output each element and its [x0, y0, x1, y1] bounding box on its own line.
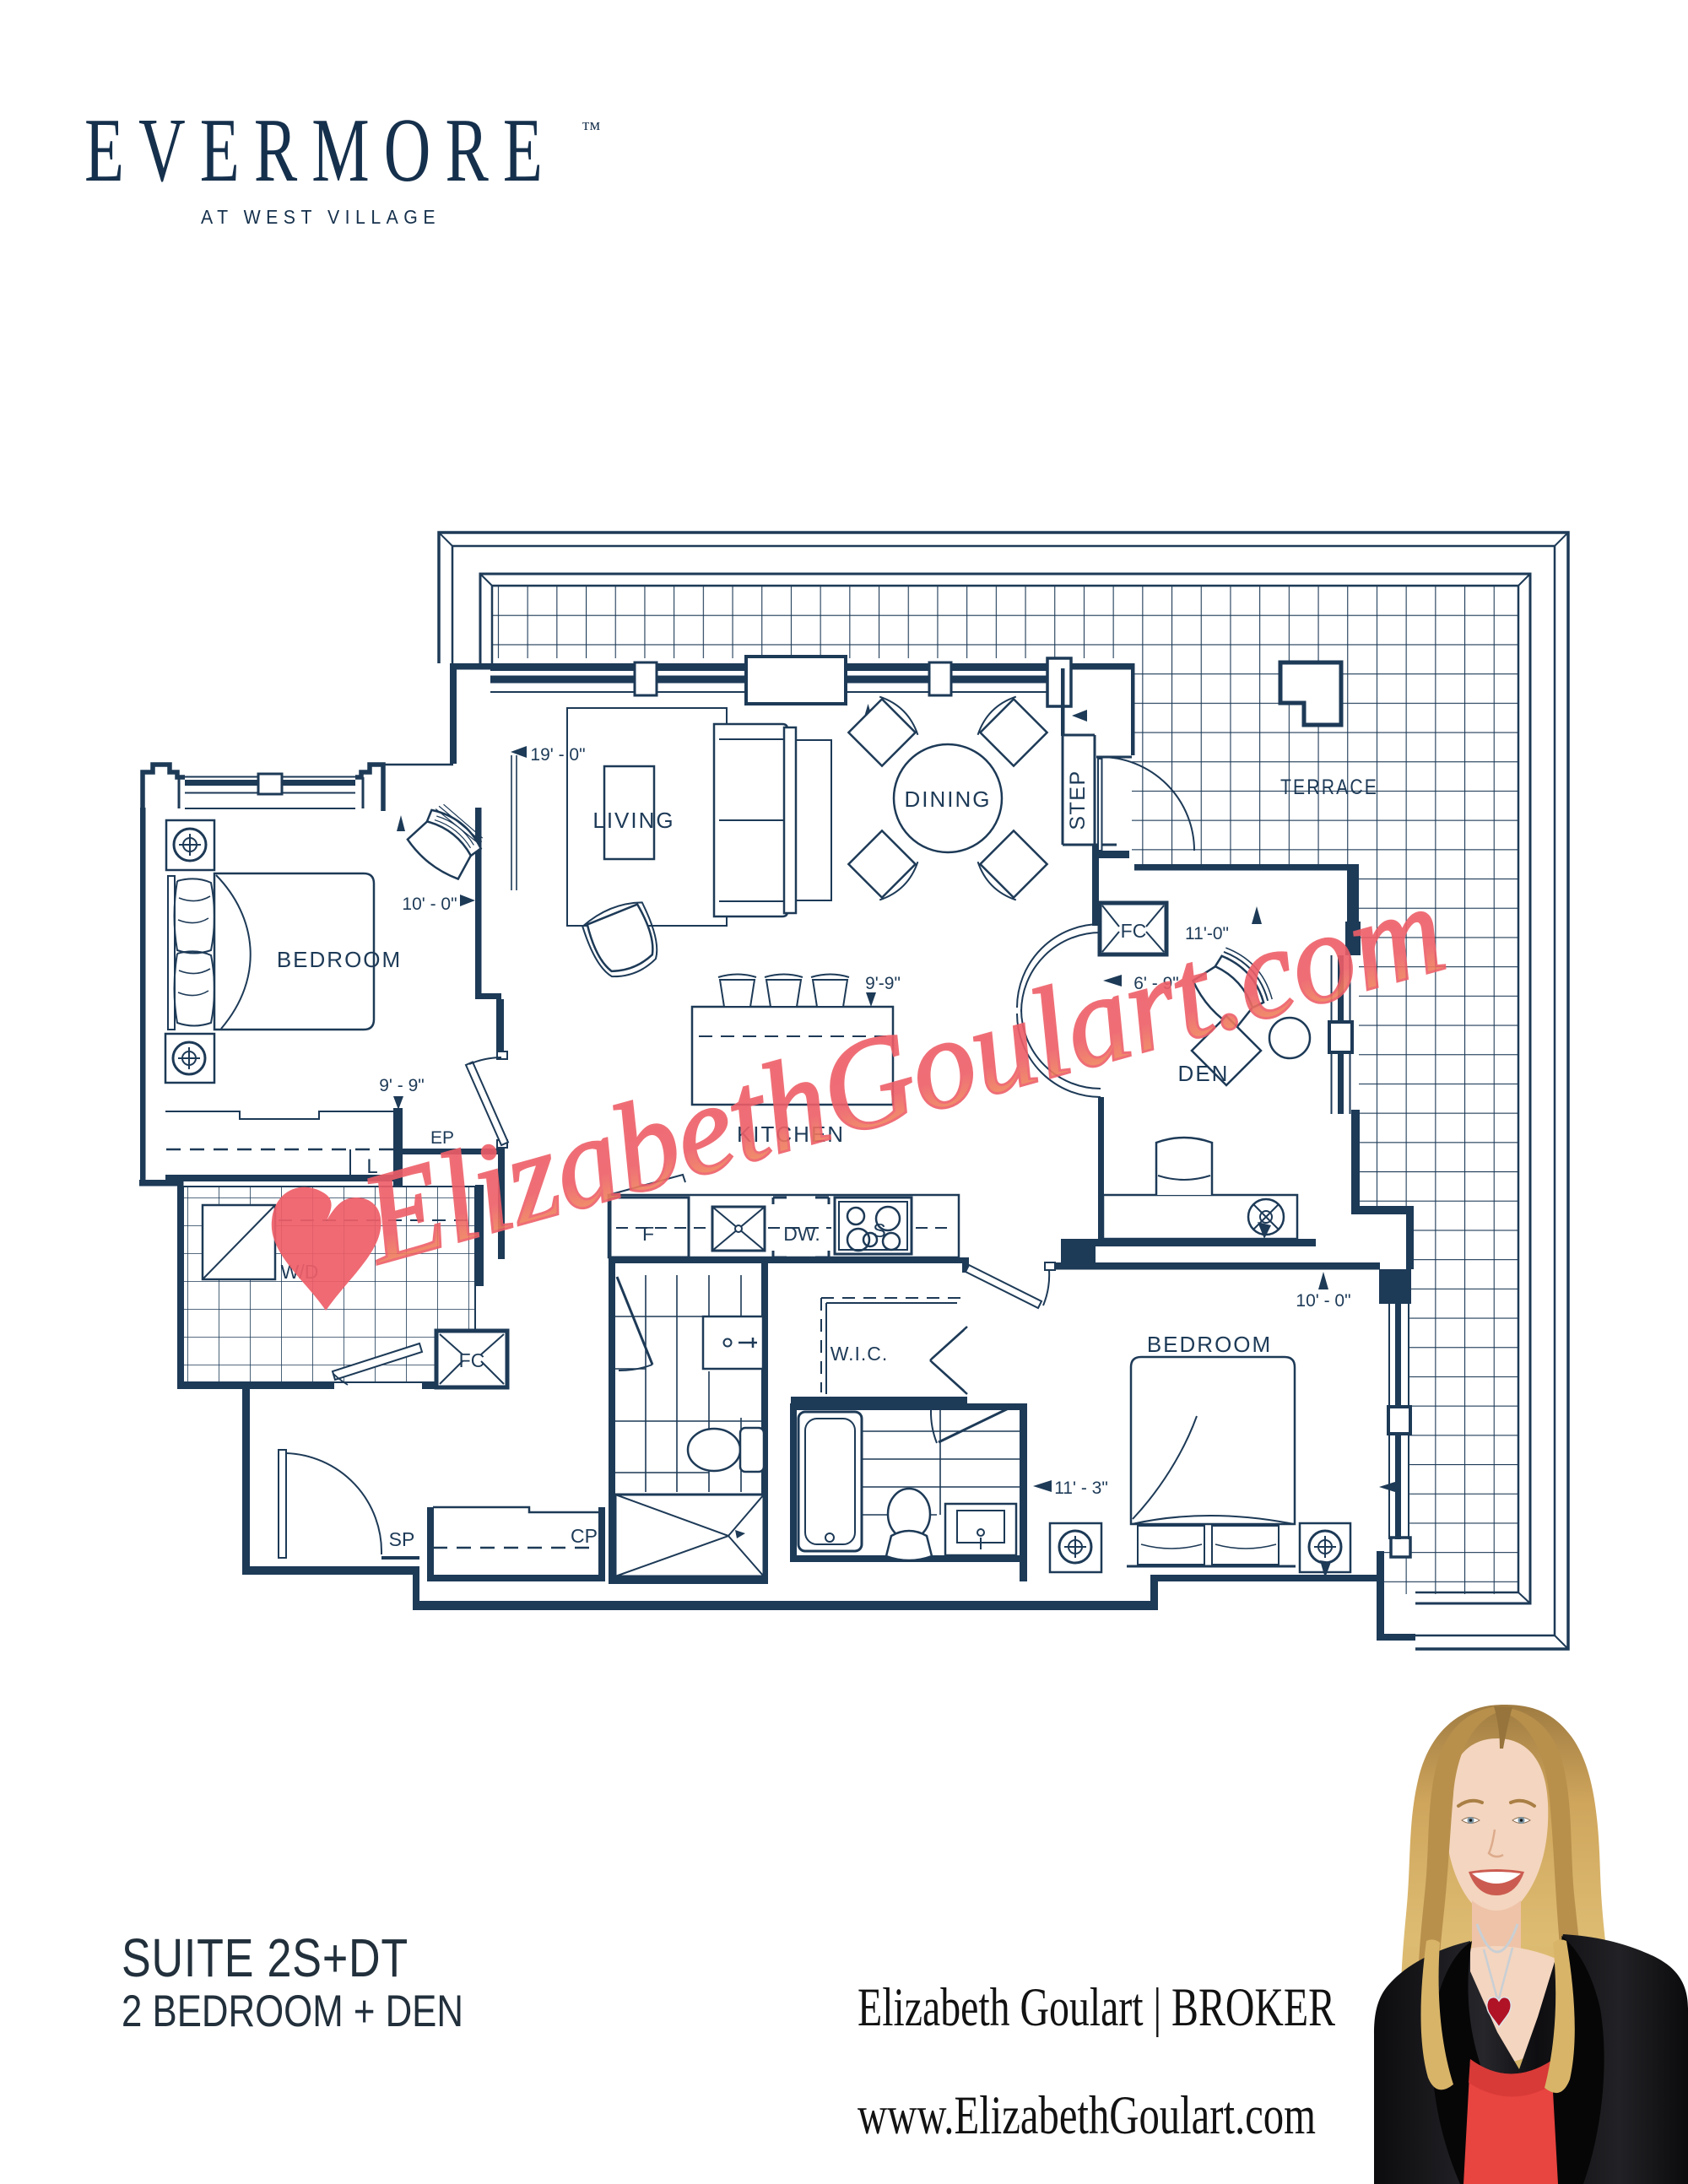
- svg-text:www.ElizabethGoulart.com: www.ElizabethGoulart.com: [858, 2085, 1316, 2146]
- svg-text:DW.: DW.: [783, 1223, 820, 1245]
- svg-text:S: S: [873, 1219, 885, 1241]
- svg-text:EVERMORE: EVERMORE: [84, 100, 557, 201]
- svg-text:™: ™: [582, 118, 601, 139]
- svg-text:CP: CP: [571, 1525, 598, 1547]
- svg-text:AT WEST VILLAGE: AT WEST VILLAGE: [201, 206, 441, 228]
- svg-text:Elizabeth Goulart | BROKER: Elizabeth Goulart | BROKER: [858, 1977, 1335, 2038]
- svg-text:TERRACE: TERRACE: [1280, 776, 1378, 799]
- svg-text:DINING: DINING: [905, 787, 992, 812]
- svg-text:9'-9": 9'-9": [865, 974, 901, 993]
- svg-text:19' - 0": 19' - 0": [530, 745, 585, 765]
- svg-text:F: F: [642, 1223, 654, 1245]
- svg-text:SP: SP: [389, 1528, 415, 1550]
- svg-text:STEP: STEP: [1066, 770, 1090, 830]
- svg-text:LIVING: LIVING: [592, 808, 674, 833]
- svg-text:11' - 3": 11' - 3": [1054, 1479, 1108, 1498]
- svg-text:10' - 0": 10' - 0": [1296, 1291, 1350, 1311]
- svg-text:FC: FC: [459, 1349, 485, 1371]
- svg-text:BEDROOM: BEDROOM: [1147, 1332, 1272, 1357]
- svg-text:W.I.C.: W.I.C.: [830, 1343, 889, 1365]
- svg-text:BEDROOM: BEDROOM: [277, 947, 402, 972]
- svg-text:9' - 9": 9' - 9": [379, 1076, 424, 1095]
- svg-text:2 BEDROOM + DEN: 2 BEDROOM + DEN: [122, 1987, 463, 2036]
- svg-text:SUITE 2S+DT: SUITE 2S+DT: [122, 1927, 408, 1988]
- svg-text:10' - 0": 10' - 0": [402, 895, 457, 914]
